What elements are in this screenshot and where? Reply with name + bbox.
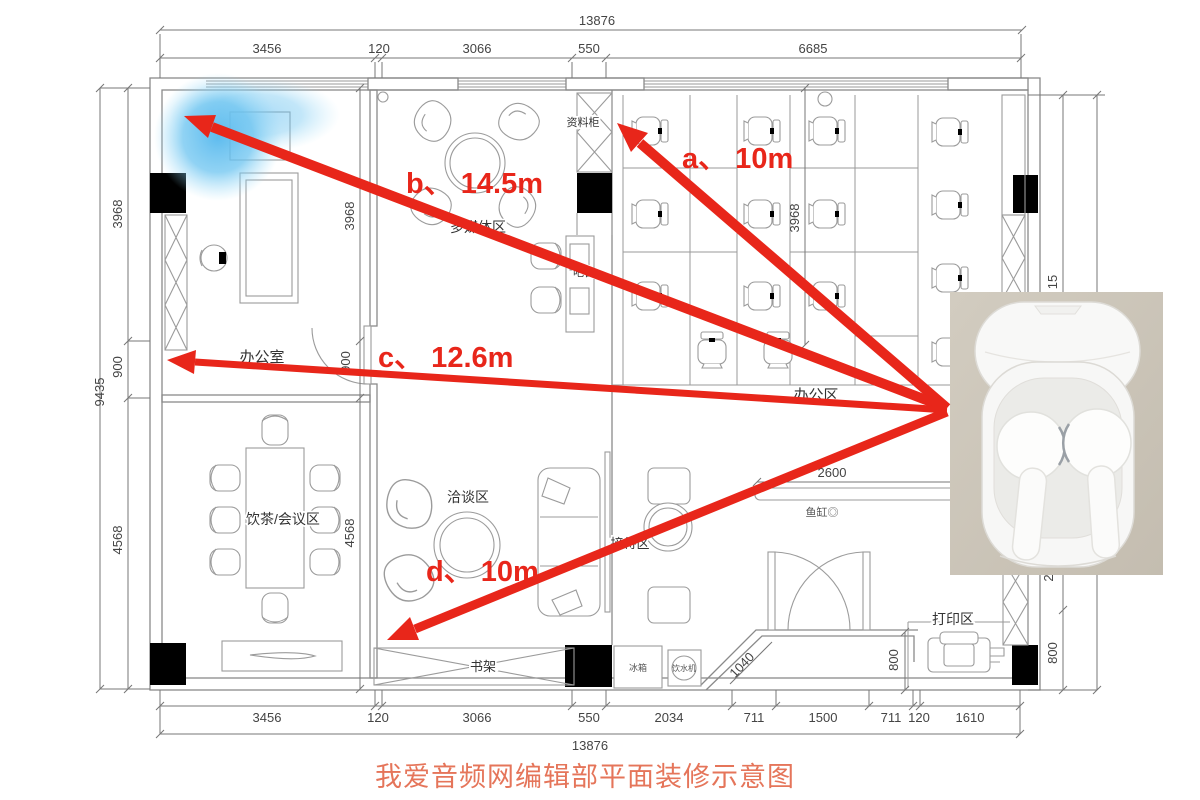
arrow-d-head [387,617,419,640]
dim-label: 2034 [655,710,684,725]
tea-meeting-furniture [210,415,342,671]
arrow-a [640,143,947,408]
dim-label: 1500 [809,710,838,725]
distance-label-d: d、 10m [426,556,539,588]
dim-label: 120 [368,41,390,56]
bookshelf-kitchen-print [374,632,1004,688]
dim-label: 120 [367,710,389,725]
room-label-file-cabinet: 资料柜 [567,115,600,129]
dim-label: 550 [578,710,600,725]
room-label-print-area: 打印区 [932,611,974,627]
dim-label: 711 [881,710,902,725]
dim-label: 3968 [342,202,357,231]
dim-label: 900 [110,356,125,378]
dim-label: 4568 [342,519,357,548]
room-label-fridge: 冰箱 [629,662,647,673]
dim-top-total: 13876 [579,13,615,28]
dim-label: 3968 [110,200,125,229]
room-label-water-dispenser: 饮水机 [672,663,696,673]
dim-label: 3968 [787,204,802,233]
dim-label: 2 [1041,574,1056,581]
left-cabinet-strip [165,215,187,350]
earbuds-photo: CE [950,292,1163,575]
distance-label-b: b、 14.5m [406,168,543,200]
dim-label: 1040 [726,649,757,680]
right-cabinet-strip-top [1002,215,1025,300]
file-cabinet-strip [577,93,612,235]
room-label-negotiation: 洽谈区 [447,489,489,505]
dim-left-total: 9435 [92,378,107,407]
image-caption: 我爱音频网编辑部平面装修示意图 [0,755,1170,794]
dim-label: 4568 [110,526,125,555]
dim-label: 120 [908,710,930,725]
dim-bottom-total: 13876 [572,738,608,753]
dim-label: 1610 [956,710,985,725]
dim-label: 3066 [463,41,492,56]
room-label-bookshelf: 书架 [470,659,496,674]
dim-label: 550 [578,41,600,56]
room-label-tea-meeting: 饮茶/会议区 [246,511,320,527]
dim-label: 800 [886,649,901,671]
dim-label: 6685 [799,41,828,56]
distance-label-a: a、 10m [682,143,793,175]
dim-label: 3456 [253,41,282,56]
dim-label: 711 [744,710,765,725]
dim-label: 3456 [253,710,282,725]
arrow-c-head [167,350,196,374]
dim-label: 15 [1045,275,1060,289]
floor-plan-drawing: 13876 3456 120 3066 550 6685 3456 120 30… [0,0,1200,800]
screenshot-root: 13876 3456 120 3066 550 6685 3456 120 30… [0,0,1200,800]
dim-label: 800 [1045,642,1060,664]
distance-label-c: c、 12.6m [378,342,513,374]
room-label-fish-tank: 鱼缸◎ [806,505,839,519]
dim-label: 3066 [463,710,492,725]
